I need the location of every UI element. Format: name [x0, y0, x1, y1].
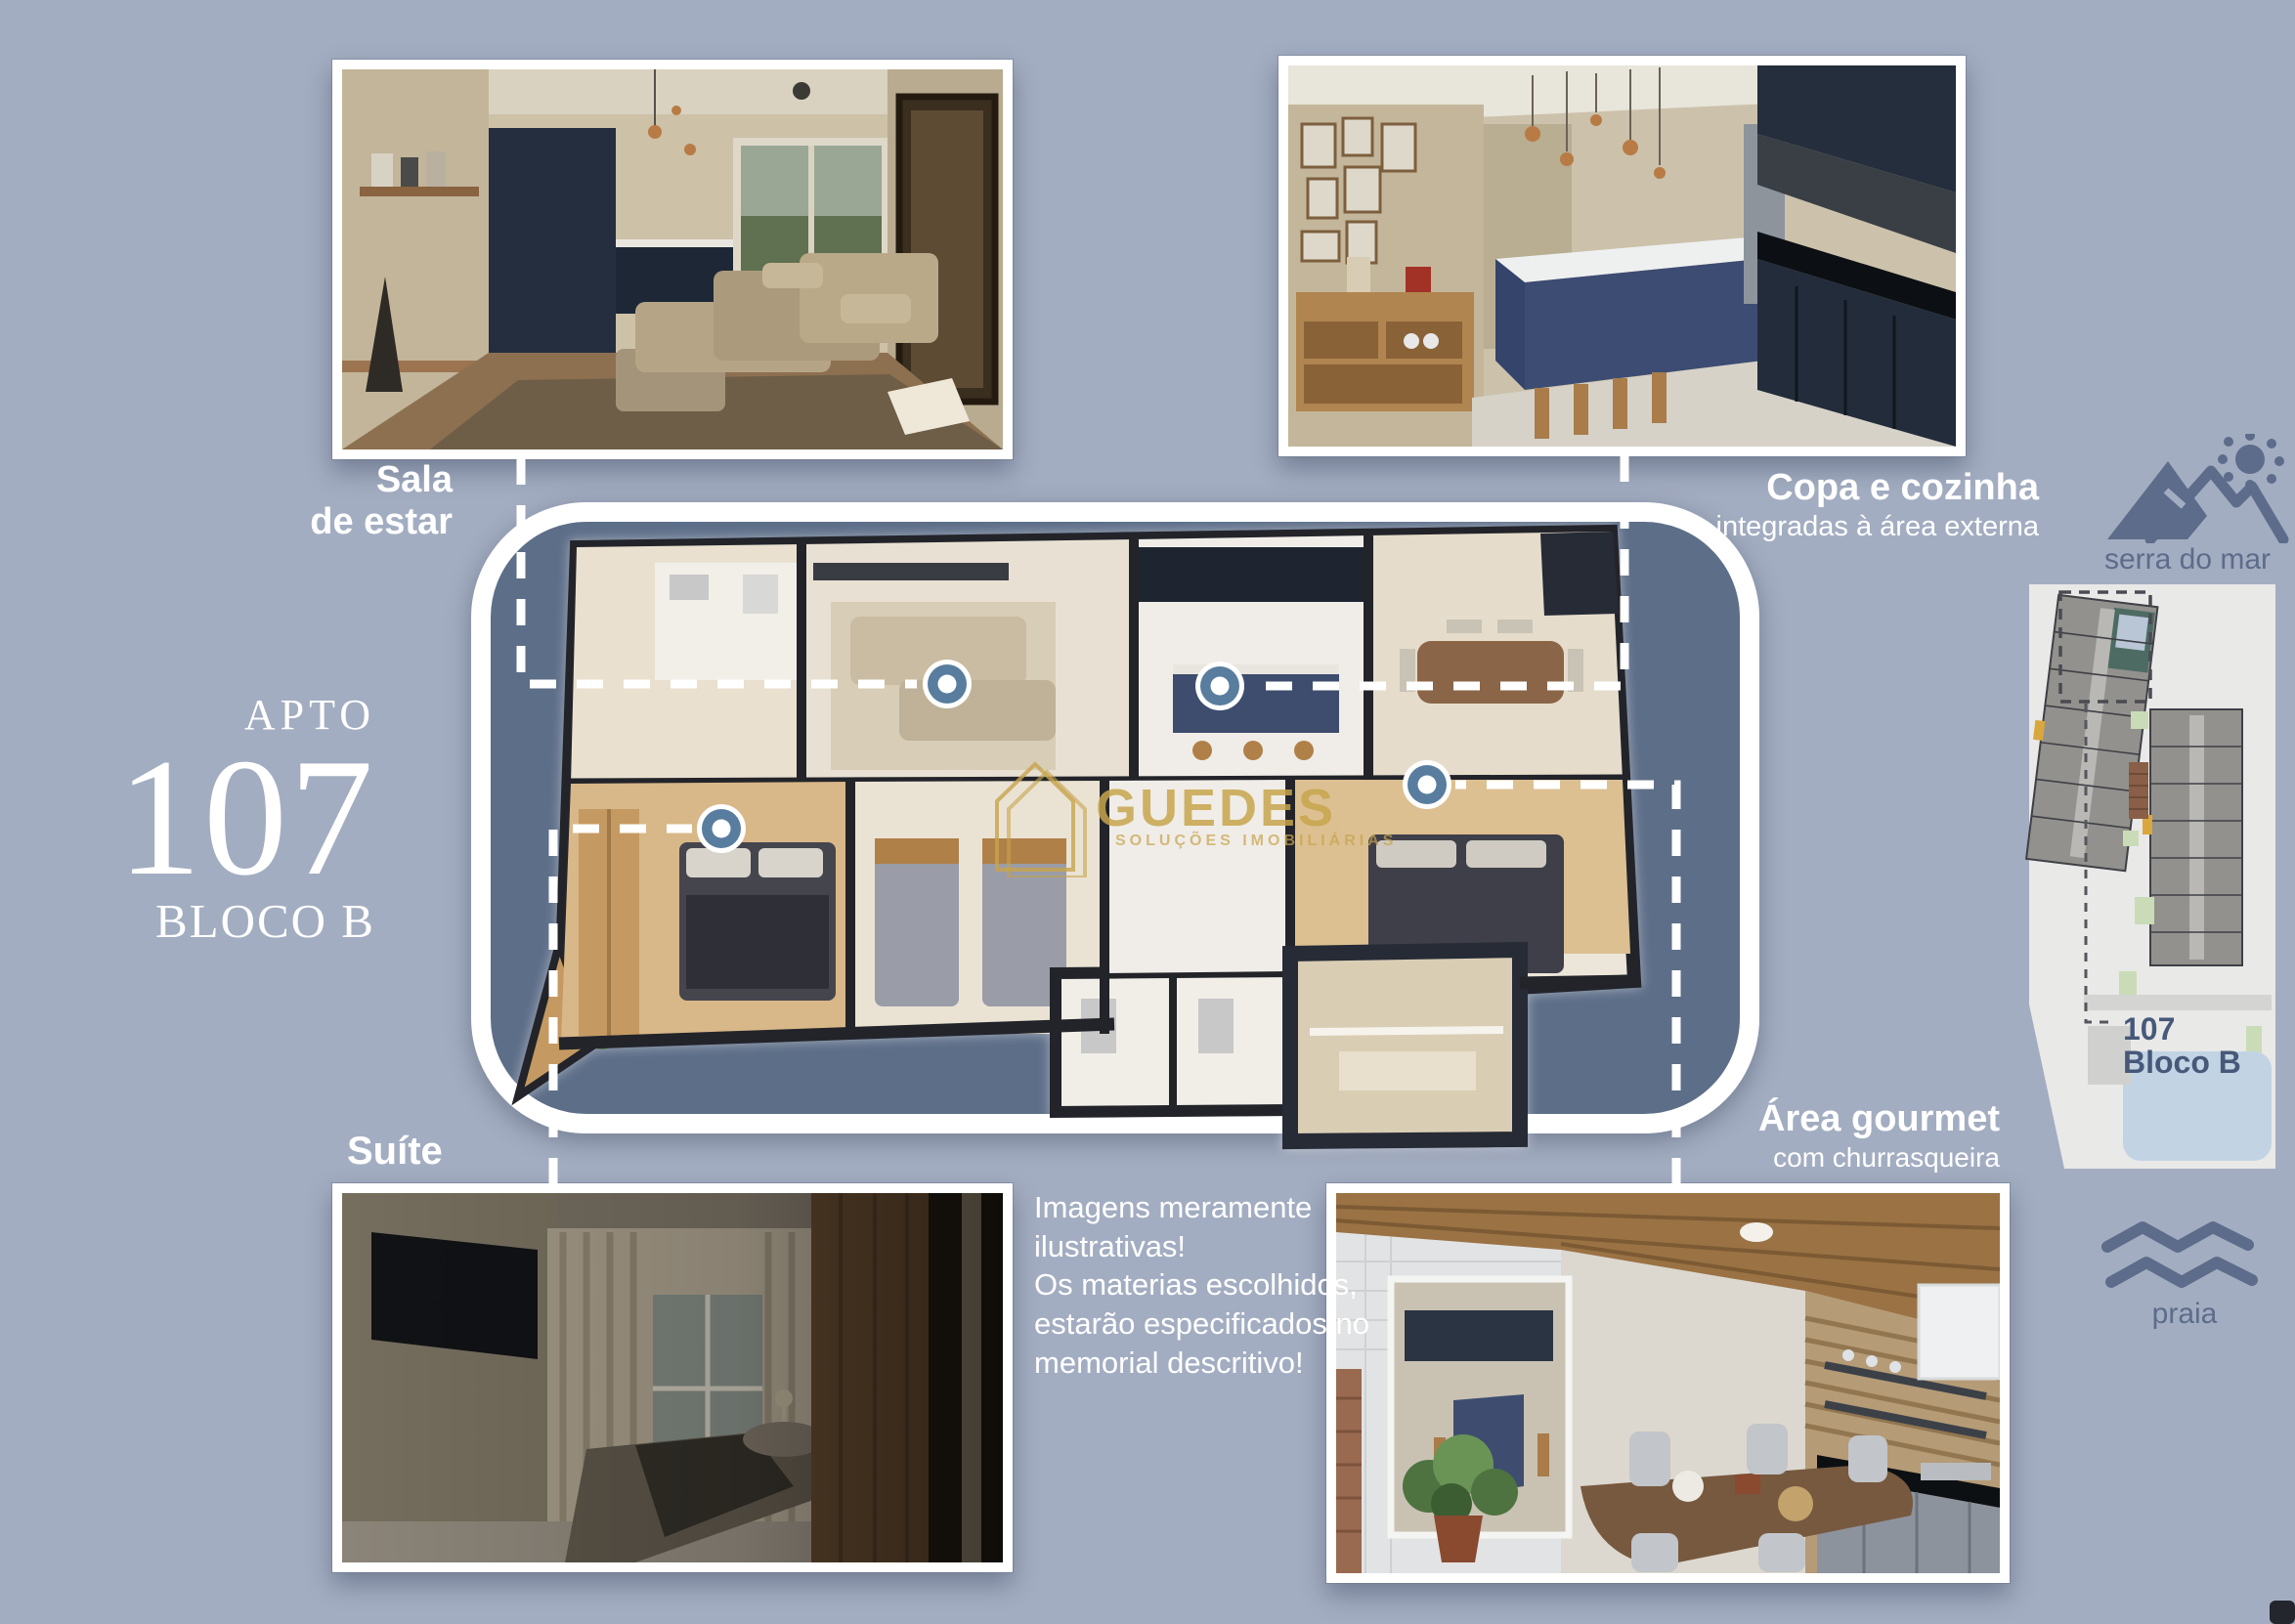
label-suite-title: Suíte	[347, 1130, 443, 1174]
watermark-tagline: SOLUÇÕES IMOBILIÁRIAS	[1115, 833, 1397, 850]
photo-area-gourmet	[1326, 1183, 2010, 1583]
photo-copa-cozinha	[1278, 56, 1966, 456]
guedes-house-icon	[975, 741, 1095, 877]
label-copa-subtitle: integradas à área externa	[1716, 511, 2040, 543]
label-gourmet-title: Área gourmet	[1758, 1098, 2000, 1140]
brochure-page: { "page": { "background": "#a3adc1" }, "…	[0, 0, 2295, 1624]
praia-waves-icon	[2101, 1218, 2268, 1294]
serra-do-mar-label: serra do mar	[2080, 543, 2295, 577]
suite-photo-render	[342, 1193, 1003, 1562]
siteplan-unit-number: 107	[2123, 1011, 2175, 1047]
praia-label: praia	[2092, 1298, 2277, 1331]
apartment-identity: APTO 107 BLOCO B	[88, 690, 375, 949]
sala-photo-render	[342, 69, 1003, 449]
label-sala-line1: Sala	[310, 459, 453, 501]
watermark-name: GUEDES	[1096, 778, 1336, 838]
copa-photo-render	[1288, 65, 1956, 447]
siteplan-map: 107 Bloco B	[2025, 584, 2281, 1171]
photo-sala-de-estar	[332, 60, 1013, 459]
label-gourmet-subtitle: com churrasqueira	[1758, 1142, 2000, 1174]
scrollbar-thumb[interactable]	[2270, 1601, 2295, 1624]
label-copa-title: Copa e cozinha	[1716, 467, 2040, 509]
label-suite: Suíte	[347, 1130, 443, 1174]
siteplan-block-label: Bloco B	[2123, 1045, 2241, 1080]
label-area-gourmet: Área gourmet com churrasqueira	[1758, 1098, 2000, 1174]
label-copa-cozinha: Copa e cozinha integradas à área externa	[1716, 467, 2040, 543]
photo-suite	[332, 1183, 1013, 1572]
disclaimer-text: Imagens meramente ilustrativas! Os mater…	[1034, 1188, 1370, 1382]
gourmet-photo-render	[1336, 1193, 2000, 1573]
label-sala-line2: de estar	[310, 501, 453, 543]
apartment-number: 107	[88, 736, 375, 901]
serra-do-mar-icon	[2090, 434, 2289, 543]
label-sala-de-estar: Sala de estar	[310, 459, 453, 542]
